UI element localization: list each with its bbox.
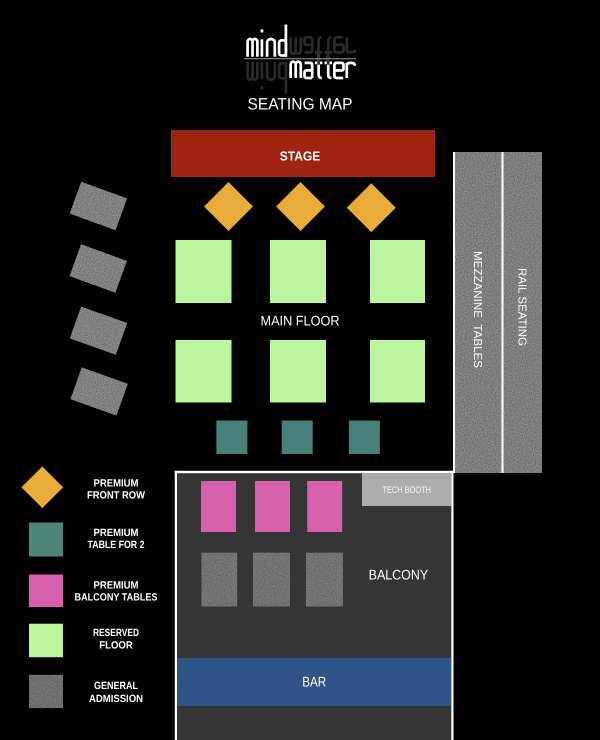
- svg-text:BAR: BAR: [302, 674, 326, 690]
- svg-text:RAIL SEATING: RAIL SEATING: [515, 268, 527, 346]
- svg-text:PREMIUM: PREMIUM: [94, 527, 139, 539]
- svg-text:GENERAL: GENERAL: [94, 680, 138, 692]
- svg-text:TABLE FOR 2: TABLE FOR 2: [88, 539, 145, 551]
- svg-text:TECH BOOTH: TECH BOOTH: [382, 485, 431, 496]
- svg-text:ADMISSION: ADMISSION: [89, 693, 143, 705]
- svg-text:PREMIUM: PREMIUM: [94, 478, 139, 490]
- svg-text:MAIN FLOOR: MAIN FLOOR: [261, 313, 340, 329]
- svg-text:SEATING MAP: SEATING MAP: [248, 95, 353, 113]
- svg-text:FLOOR: FLOOR: [99, 640, 133, 652]
- svg-text:RESERVED: RESERVED: [93, 627, 139, 639]
- svg-text:BALCONY TABLES: BALCONY TABLES: [75, 592, 158, 604]
- svg-text:FRONT ROW: FRONT ROW: [87, 490, 145, 502]
- svg-text:PREMIUM: PREMIUM: [94, 580, 139, 592]
- svg-text:STAGE: STAGE: [280, 148, 321, 163]
- svg-text:BALCONY: BALCONY: [369, 566, 429, 582]
- svg-text:MEZZANINE TABLES: MEZZANINE TABLES: [471, 251, 483, 368]
